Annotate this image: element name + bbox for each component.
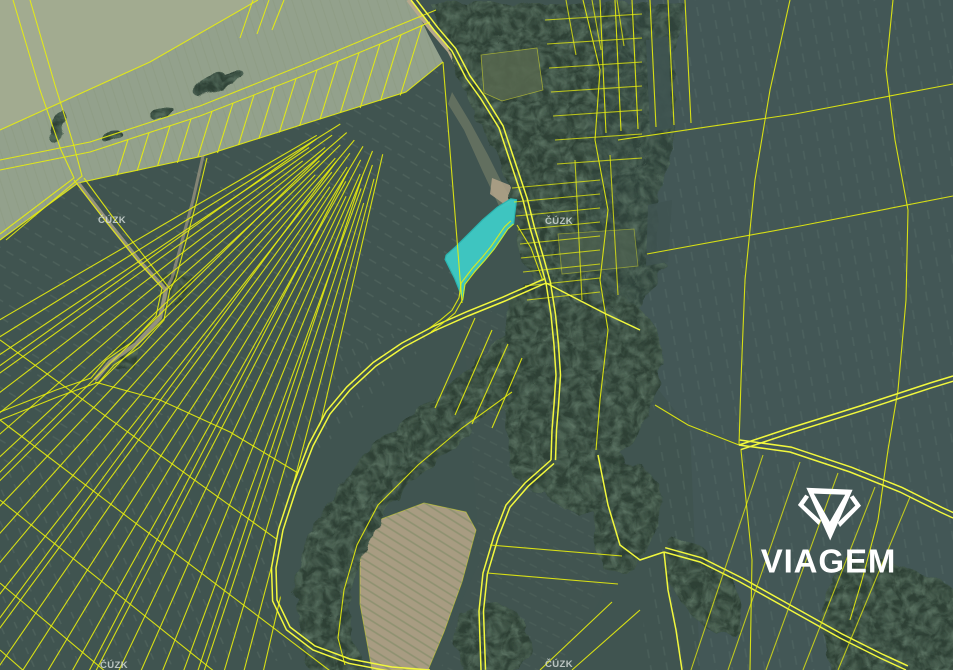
- svg-text:ČÚZK: ČÚZK: [100, 659, 128, 670]
- svg-text:VIAGEM: VIAGEM: [761, 543, 897, 580]
- svg-text:ČÚZK: ČÚZK: [545, 658, 573, 670]
- svg-text:ČÚZK: ČÚZK: [545, 215, 573, 227]
- svg-text:ČÚZK: ČÚZK: [98, 214, 126, 226]
